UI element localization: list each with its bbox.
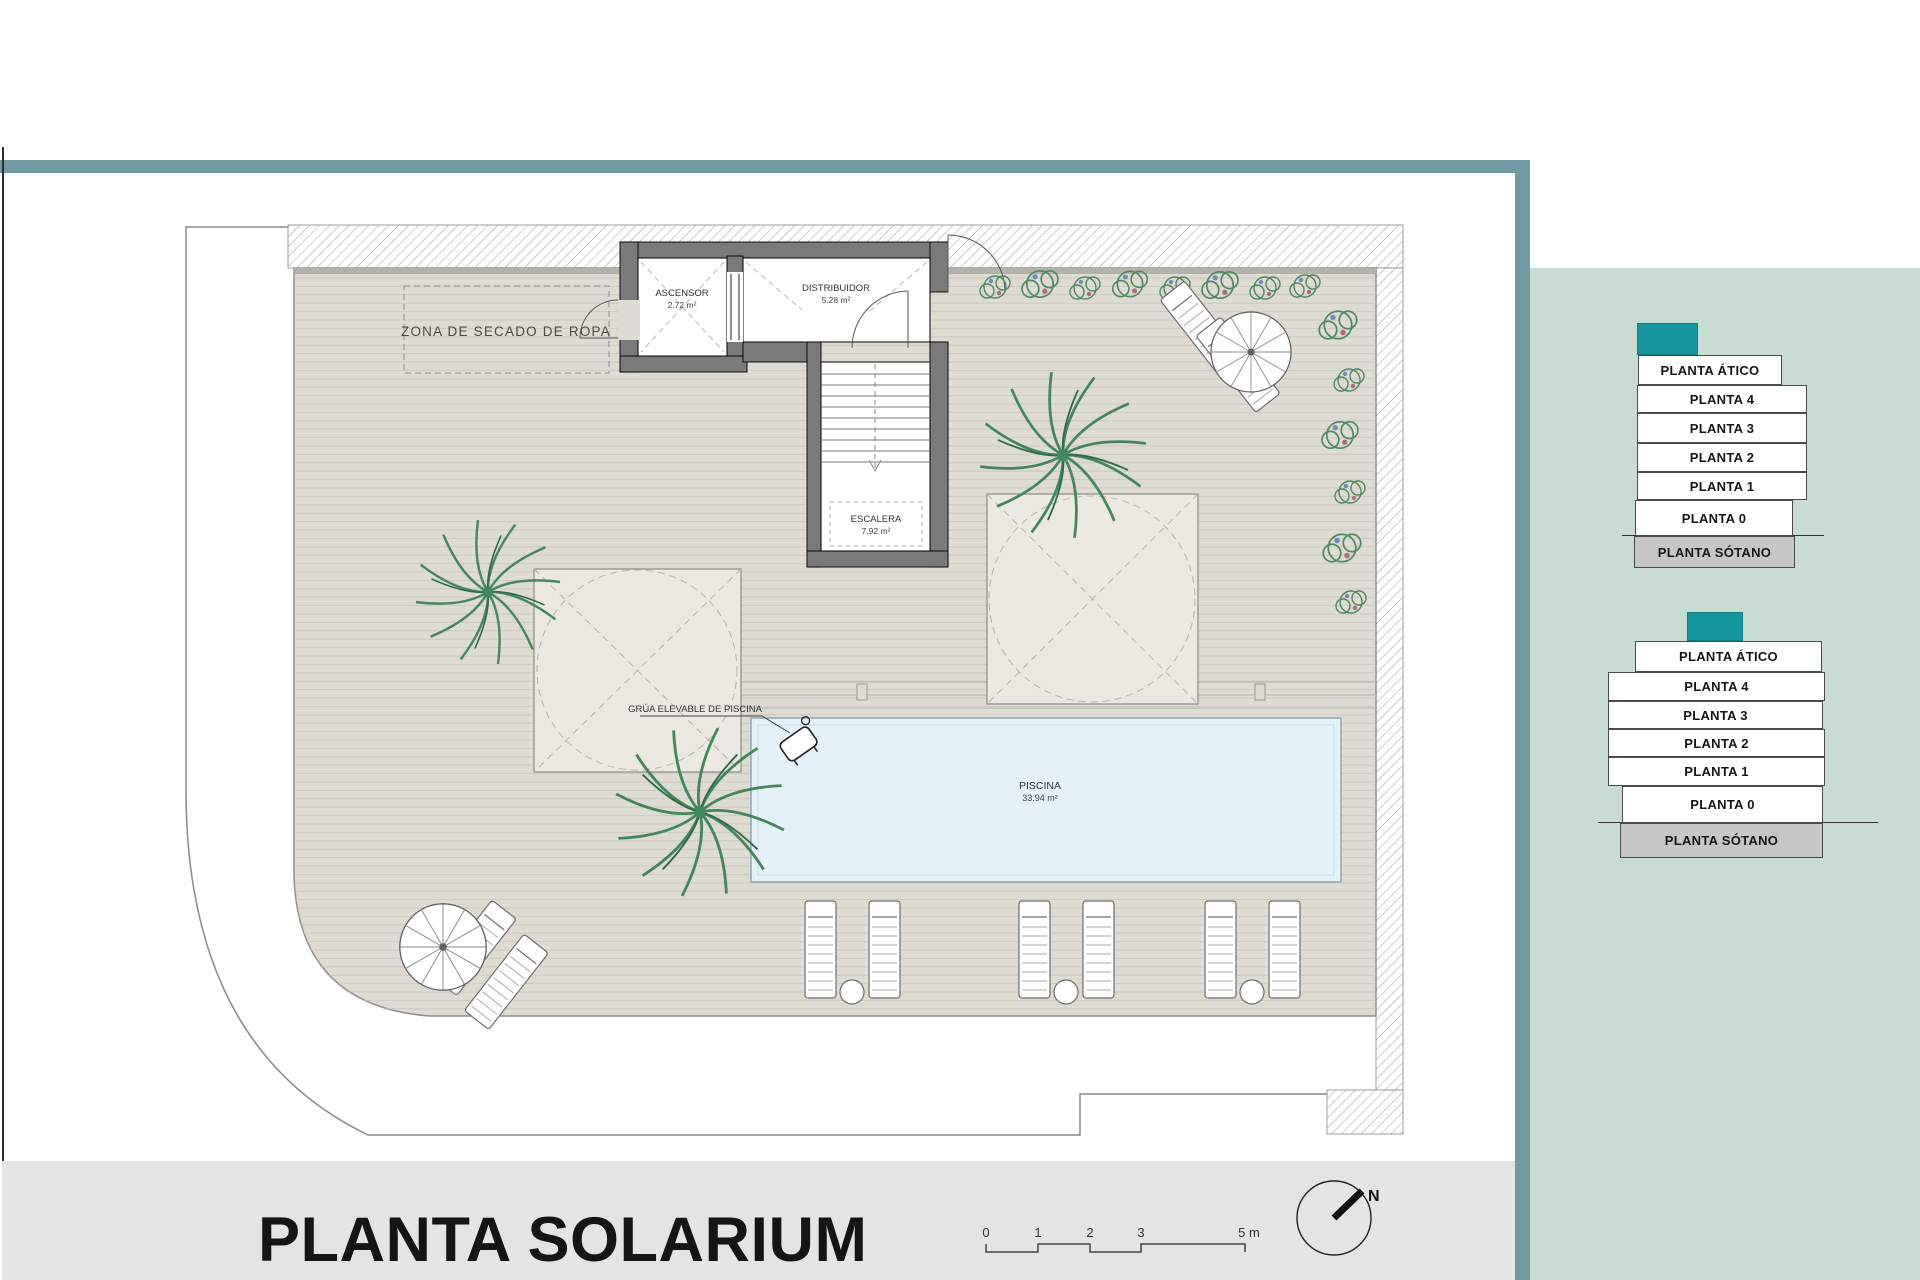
distribuidor-name-label: DISTRIBUIDOR — [802, 283, 870, 294]
north-compass: N — [1297, 1181, 1380, 1255]
svg-text:1: 1 — [1034, 1225, 1041, 1240]
stack-level-row: PLANTA 1 — [1637, 472, 1807, 500]
distribuidor-area-label: 5.28 m² — [822, 295, 851, 305]
solarium-highlight — [1687, 612, 1743, 641]
stack-level-row: PLANTA SÓTANO — [1634, 536, 1795, 568]
svg-text:2: 2 — [1086, 1225, 1093, 1240]
svg-text:5 m: 5 m — [1238, 1225, 1260, 1240]
floor-plan-svg: ZONA DE SECADO DE ROPA PISCINA 33.94 m² … — [0, 0, 1920, 1280]
stack-level-row: PLANTA 0 — [1635, 500, 1793, 536]
solarium-highlight — [1637, 323, 1698, 355]
drying-zone-label: ZONA DE SECADO DE ROPA — [401, 324, 611, 339]
stack-level-row: PLANTA 3 — [1608, 701, 1823, 729]
pool: PISCINA 33.94 m² — [751, 718, 1341, 882]
ascensor-area-label: 2.72 m² — [668, 300, 697, 310]
north-label: N — [1368, 1188, 1380, 1205]
stack-level-row: PLANTA 2 — [1637, 443, 1807, 472]
stack-level-row: PLANTA ÁTICO — [1638, 355, 1782, 385]
skylight-left — [534, 569, 741, 772]
escalera-area-label: 7.92 m² — [862, 526, 891, 536]
stack-level-row: PLANTA 0 — [1622, 786, 1823, 823]
stack-level-row: PLANTA 1 — [1608, 757, 1825, 786]
skylight-right — [987, 494, 1198, 704]
scale-bar: 0 1 2 3 5 m — [982, 1225, 1259, 1252]
stack-level-row: PLANTA SÓTANO — [1620, 823, 1823, 858]
pool-area-label: 33.94 m² — [1022, 793, 1058, 803]
plan-title: PLANTA SOLARIUM — [258, 1204, 867, 1276]
stack-level-row: PLANTA 4 — [1637, 385, 1807, 413]
escalera-name-label: ESCALERA — [851, 514, 902, 525]
svg-text:3: 3 — [1137, 1225, 1144, 1240]
svg-text:0: 0 — [982, 1225, 989, 1240]
stack-level-row: PLANTA ÁTICO — [1635, 641, 1822, 672]
stack-level-row: PLANTA 3 — [1637, 413, 1807, 443]
pool-name-label: PISCINA — [1019, 780, 1061, 792]
ascensor-name-label: ASCENSOR — [655, 288, 708, 299]
stack-level-row: PLANTA 2 — [1608, 729, 1825, 757]
stack-level-row: PLANTA 4 — [1608, 672, 1825, 701]
hoist-label: GRÚA ELEVABLE DE PISCINA — [628, 704, 763, 715]
